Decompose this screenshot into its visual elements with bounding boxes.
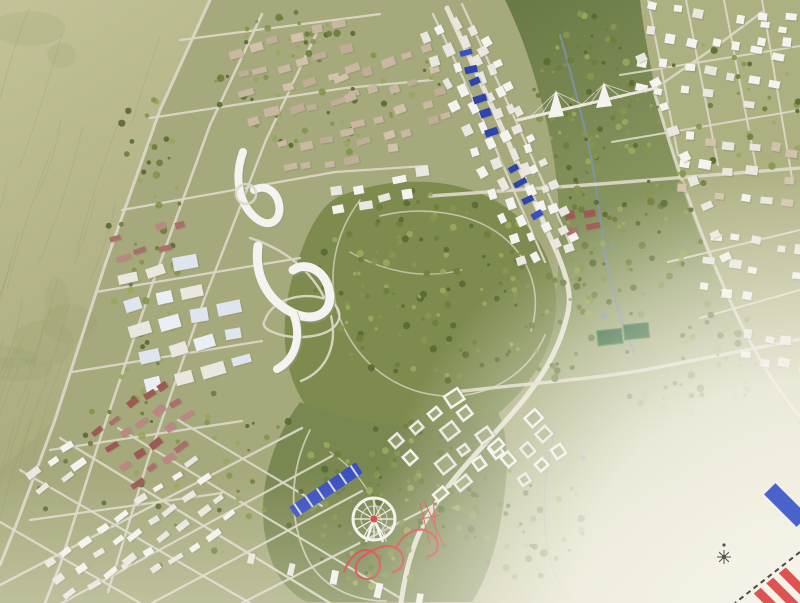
fog-overlay: [0, 0, 800, 603]
masterplan-render: [0, 0, 800, 603]
masterplan-canvas: [0, 0, 800, 603]
